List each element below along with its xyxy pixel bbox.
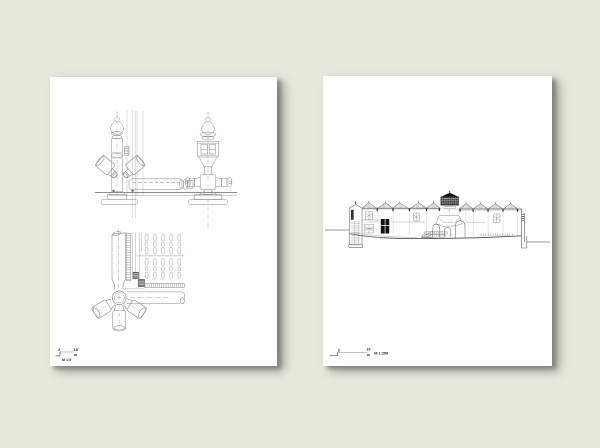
svg-text:10: 10: [74, 347, 79, 352]
svg-text:2: 2: [58, 347, 61, 352]
svg-text:2: 2: [338, 347, 341, 352]
svg-text:M 1:5: M 1:5: [62, 358, 71, 362]
svg-text:M 1:250: M 1:250: [374, 351, 388, 355]
svg-text:m: m: [74, 353, 77, 357]
svg-text:m: m: [367, 353, 370, 357]
svg-text:10: 10: [367, 348, 371, 352]
